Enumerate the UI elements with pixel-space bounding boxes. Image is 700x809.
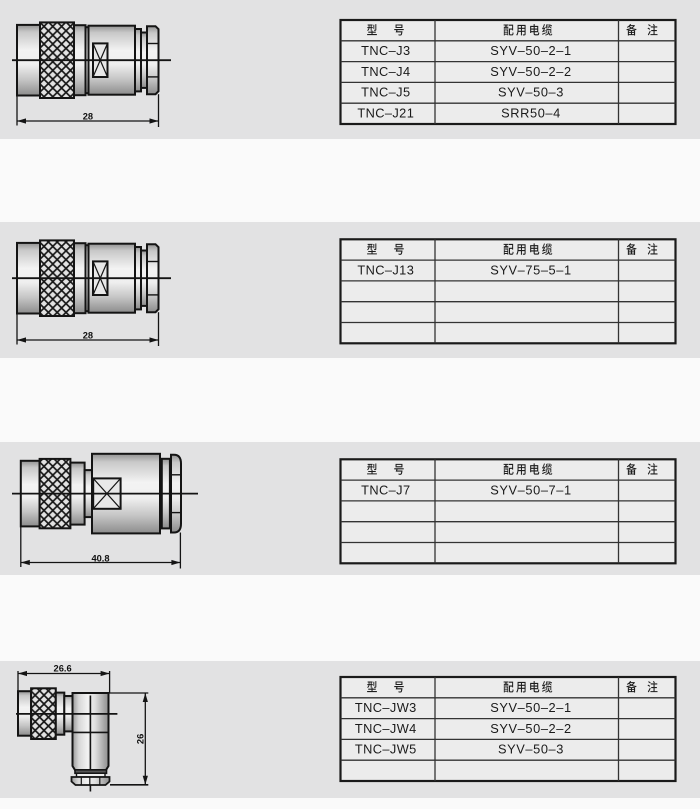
svg-text:TNC–J7: TNC–J7 [361, 482, 410, 497]
svg-text:TNC–J4: TNC–J4 [361, 64, 410, 79]
svg-text:SYV–50–2–1: SYV–50–2–1 [490, 700, 571, 715]
svg-text:TNC–JW4: TNC–JW4 [355, 721, 417, 736]
svg-text:SYV–50–2–2: SYV–50–2–2 [490, 721, 571, 736]
svg-text:SYV–50–3: SYV–50–3 [498, 742, 564, 757]
svg-text:26.6: 26.6 [54, 664, 72, 674]
svg-text:TNC–JW3: TNC–JW3 [355, 700, 417, 715]
svg-text:SYV–50–3: SYV–50–3 [498, 85, 564, 100]
svg-text:TNC–J13: TNC–J13 [357, 262, 414, 277]
svg-text:26: 26 [136, 734, 146, 744]
svg-text:TNC–JW5: TNC–JW5 [355, 742, 417, 757]
svg-text:SYV–50–2–1: SYV–50–2–1 [490, 43, 571, 58]
svg-text:TNC–J5: TNC–J5 [361, 85, 410, 100]
svg-text:TNC–J3: TNC–J3 [361, 43, 410, 58]
svg-text:SRR50–4: SRR50–4 [501, 105, 561, 120]
svg-text:TNC–J21: TNC–J21 [357, 105, 414, 120]
svg-text:SYV–75–5–1: SYV–75–5–1 [490, 262, 571, 277]
svg-text:28: 28 [83, 331, 93, 341]
svg-text:SYV–50–2–2: SYV–50–2–2 [490, 64, 571, 79]
svg-text:40.8: 40.8 [91, 553, 109, 563]
svg-text:28: 28 [83, 112, 93, 122]
svg-text:SYV–50–7–1: SYV–50–7–1 [490, 482, 571, 497]
